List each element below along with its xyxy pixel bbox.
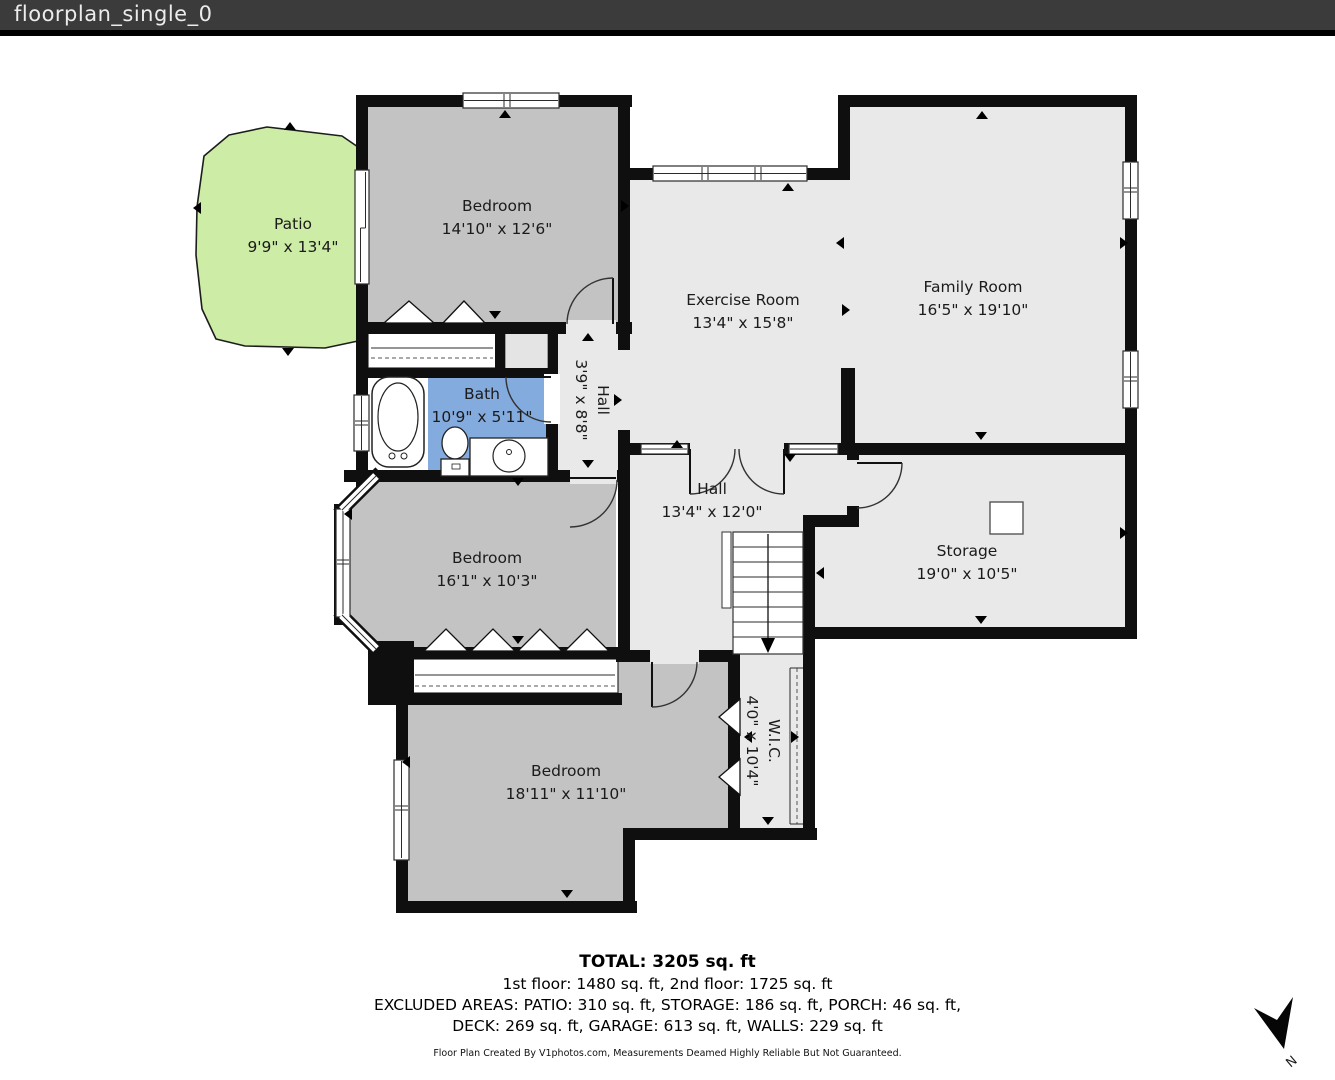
room-dims-storage: 19'0" x 10'5" bbox=[917, 565, 1018, 583]
room-label-patio: Patio bbox=[274, 215, 312, 233]
linen-closet-floor bbox=[505, 332, 548, 370]
room-label-hall-main: Hall bbox=[697, 480, 727, 498]
area-summary: TOTAL: 3205 sq. ft 1st floor: 1480 sq. f… bbox=[0, 952, 1335, 1069]
toilet bbox=[442, 427, 468, 459]
room-dims-family: 16'5" x 19'10" bbox=[918, 301, 1029, 319]
room-label-exercise: Exercise Room bbox=[686, 291, 800, 309]
room-label-family: Family Room bbox=[924, 278, 1023, 296]
closet-mid-band bbox=[412, 659, 618, 693]
room-label-bedroom-mid: Bedroom bbox=[452, 549, 522, 567]
room-dims-bath: 10'9" x 5'11" bbox=[432, 408, 533, 426]
room-dims-bedroom-top: 14'10" x 12'6" bbox=[442, 220, 553, 238]
credit-text: Floor Plan Created By V1photos.com, Meas… bbox=[0, 1048, 1335, 1059]
excluded-areas-text-2: DECK: 269 sq. ft, GARAGE: 613 sq. ft, WA… bbox=[0, 1017, 1335, 1035]
sliding-door bbox=[355, 170, 369, 284]
room-dims-exercise: 13'4" x 15'8" bbox=[693, 314, 794, 332]
room-dims-hall-small: 3'9" x 8'8" bbox=[572, 359, 590, 440]
room-dims-patio: 9'9" x 13'4" bbox=[247, 238, 338, 256]
exercise-family-floor bbox=[628, 107, 1125, 443]
support-post bbox=[990, 502, 1023, 534]
room-dims-bedroom-mid: 16'1" x 10'3" bbox=[437, 572, 538, 590]
room-label-hall-small: Hall bbox=[594, 385, 612, 415]
room-label-bedroom-top: Bedroom bbox=[462, 197, 532, 215]
room-dims-hall-main: 13'4" x 12'0" bbox=[662, 503, 763, 521]
closet-top-band bbox=[368, 332, 496, 368]
total-area-text: TOTAL: 3205 sq. ft bbox=[0, 952, 1335, 972]
floorplan-drawing: Patio 9'9" x 13'4" Bedroom 14'10" x 12'6… bbox=[0, 0, 1335, 1080]
room-label-storage: Storage bbox=[937, 542, 998, 560]
room-label-bath: Bath bbox=[464, 385, 500, 403]
staircase bbox=[722, 532, 803, 654]
room-label-bedroom-bottom: Bedroom bbox=[531, 762, 601, 780]
floor-areas-text: 1st floor: 1480 sq. ft, 2nd floor: 1725 … bbox=[0, 975, 1335, 993]
sink bbox=[493, 440, 525, 472]
room-label-wic: W.I.C. bbox=[765, 719, 783, 763]
room-dims-bedroom-bottom: 18'11" x 11'10" bbox=[506, 785, 627, 803]
storage-floor bbox=[815, 455, 1125, 627]
room-dims-wic: 4'0" x 10'4" bbox=[743, 695, 761, 786]
floorplan-page: floorplan_single_0 bbox=[0, 0, 1335, 1080]
excluded-areas-text-1: EXCLUDED AREAS: PATIO: 310 sq. ft, STORA… bbox=[0, 996, 1335, 1014]
